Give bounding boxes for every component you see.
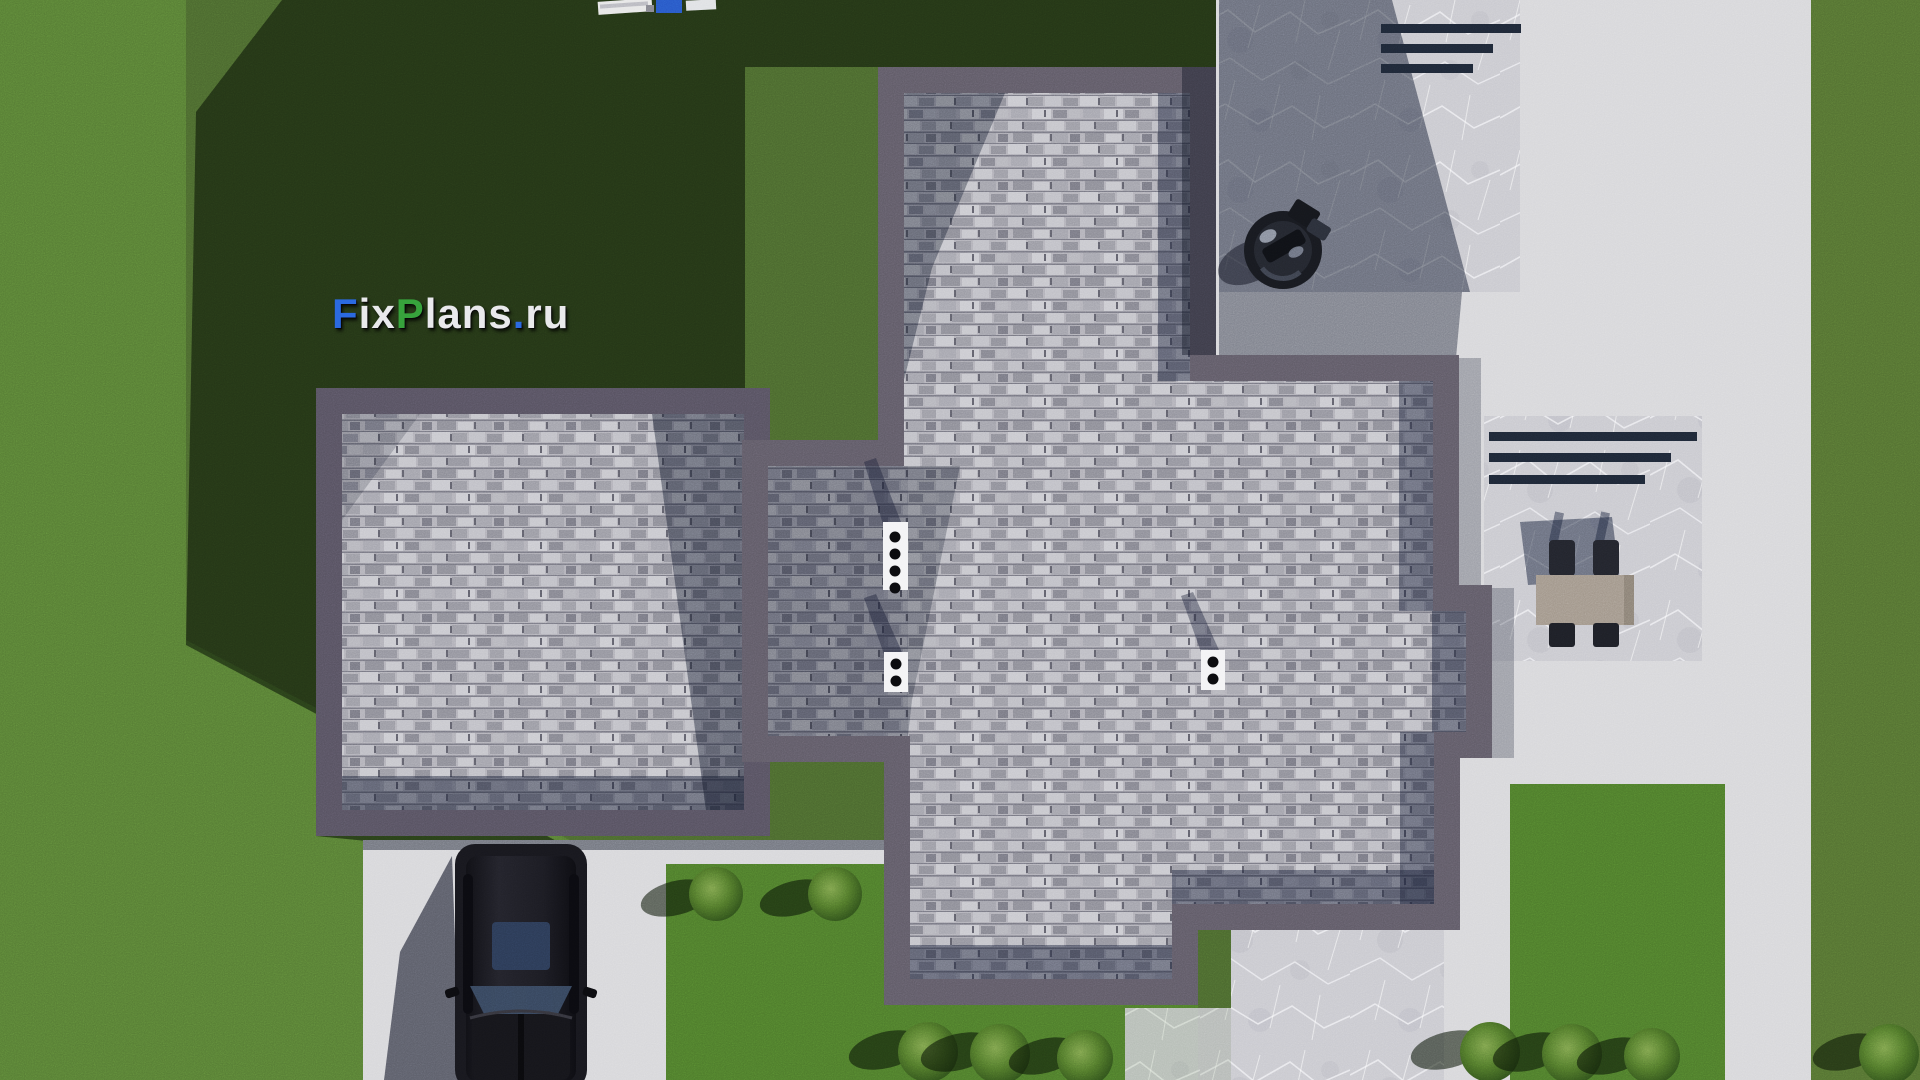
fixplans-watermark: FixPlans.ru	[332, 290, 569, 338]
aerial-render	[0, 0, 1920, 1080]
watermark-segment: ru	[525, 290, 569, 337]
watermark-segment: .	[513, 290, 526, 337]
render-canvas: FixPlans.ru	[0, 0, 1920, 1080]
watermark-segment: lans	[425, 290, 513, 337]
watermark-segment: ix	[359, 290, 396, 337]
watermark-segment: F	[332, 290, 359, 337]
film-grain-overlay	[0, 0, 1920, 1080]
watermark-segment: P	[396, 290, 425, 337]
